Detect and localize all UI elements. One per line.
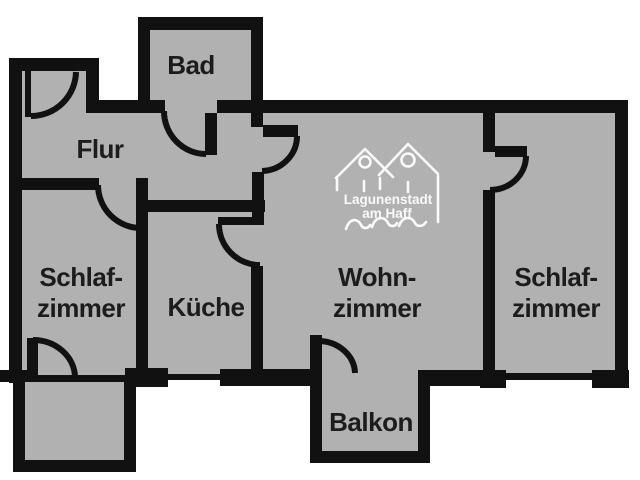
top-right-wall bbox=[251, 100, 628, 113]
terrace-bottom-wall bbox=[13, 460, 136, 472]
room-label-flur: Flur bbox=[50, 134, 150, 165]
terrace-left-wall bbox=[13, 382, 25, 472]
wohnzimmer-schlafzimmer-divider-top bbox=[483, 113, 495, 152]
room-label-schlafzimmer-links: Schlaf- zimmer bbox=[31, 262, 131, 324]
logo-text-line1: Lagunenstadt bbox=[344, 192, 433, 207]
kueche-wohnzimmer-divider-low bbox=[251, 266, 263, 386]
terrace-area bbox=[19, 378, 130, 466]
room-label-wohnzimmer-line1: Wohn- bbox=[327, 262, 427, 293]
room-label-schlafzimmer-rechts-line2: zimmer bbox=[506, 293, 606, 324]
flur-wohnzimmer-door-leaf bbox=[263, 125, 298, 137]
window-exterior-patch-schlafzimmer bbox=[506, 379, 592, 388]
schlafzimmer-rechts-door-leaf bbox=[495, 146, 527, 157]
room-label-kueche: Küche bbox=[156, 292, 256, 323]
kueche-window-line bbox=[168, 374, 220, 380]
schlafzimmer-window-line bbox=[506, 373, 592, 380]
window-exterior-patch-kueche bbox=[168, 380, 220, 388]
bottom-wall-block-4 bbox=[480, 370, 506, 388]
room-label-schlafzimmer-links-line1: Schlaf- bbox=[31, 262, 131, 293]
flur-south-wall bbox=[21, 178, 99, 190]
left-wall bbox=[9, 58, 22, 383]
kueche-top-wall bbox=[136, 200, 265, 212]
top-mid-wall bbox=[86, 100, 165, 113]
room-label-bad: Bad bbox=[141, 50, 241, 81]
terrace-right-wall bbox=[124, 382, 136, 472]
kueche-door-leaf bbox=[218, 217, 259, 225]
bad-top-wall bbox=[138, 17, 263, 30]
top-left-wall bbox=[9, 58, 99, 71]
floor-plan: Lagunenstadt am Haff Bad Flur Schlaf- zi… bbox=[0, 0, 640, 480]
wohnzimmer-schlafzimmer-divider-low bbox=[483, 190, 495, 388]
right-wall bbox=[615, 100, 628, 388]
bottom-wall-block-3 bbox=[423, 370, 483, 386]
room-label-schlafzimmer-rechts-line1: Schlaf- bbox=[506, 262, 606, 293]
room-label-schlafzimmer-links-line2: zimmer bbox=[31, 293, 131, 324]
bottom-wall-block-5 bbox=[592, 370, 629, 388]
room-label-schlafzimmer-rechts: Schlaf- zimmer bbox=[506, 262, 606, 324]
entry-door-leaf bbox=[25, 71, 31, 117]
bottom-wall-block-2 bbox=[220, 369, 311, 386]
room-label-wohnzimmer: Wohn- zimmer bbox=[327, 262, 427, 324]
room-label-balkon: Balkon bbox=[321, 407, 421, 438]
bad-door-leaf bbox=[205, 113, 217, 155]
terrace-door-leaf bbox=[27, 338, 38, 376]
balkon-bottom-wall bbox=[310, 451, 430, 463]
floor-plan-drawing: Lagunenstadt am Haff bbox=[0, 0, 640, 480]
room-label-wohnzimmer-line2: zimmer bbox=[327, 293, 427, 324]
logo-text-line2: am Haff bbox=[362, 206, 412, 221]
